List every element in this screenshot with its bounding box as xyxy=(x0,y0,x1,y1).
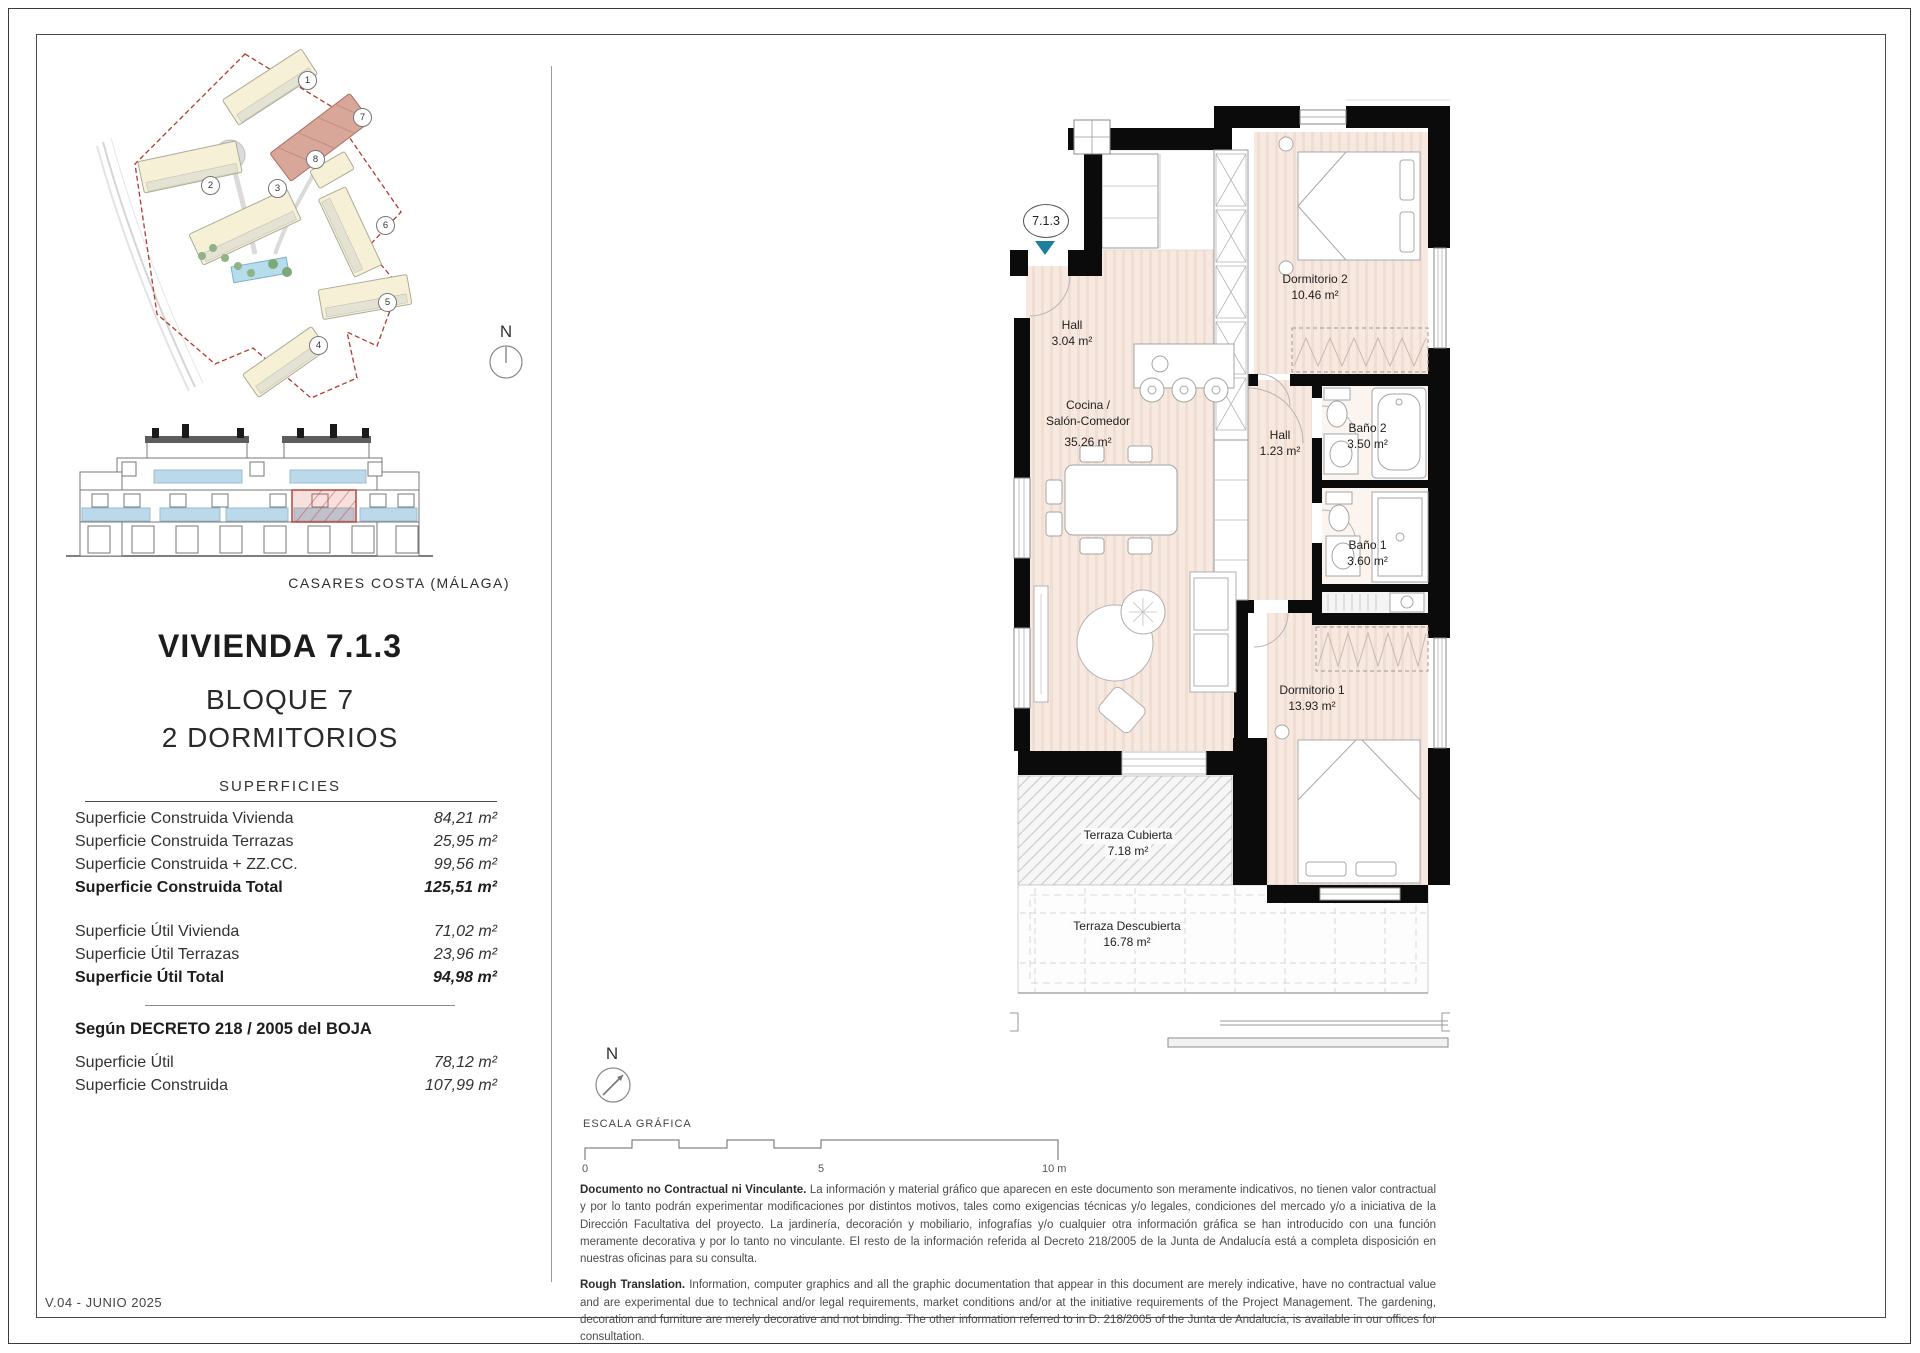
table-row: Superficie Construida Vivienda 84,21 m² xyxy=(75,810,497,833)
site-building-number-7: 7 xyxy=(353,108,372,127)
row-label: Superficie Construida Vivienda xyxy=(75,810,294,828)
row-label: Superficie Construida Terrazas xyxy=(75,833,293,851)
floor-plan-drawing xyxy=(1010,88,1450,1058)
elevation-drawing xyxy=(62,420,437,565)
site-building-number-8: 8 xyxy=(306,150,325,169)
north-label-plan: N xyxy=(592,1044,632,1064)
room-name: Salón-Comedor xyxy=(1018,414,1158,430)
highlighted-unit xyxy=(292,490,356,522)
location-caption: CASARES COSTA (MÁLAGA) xyxy=(255,575,510,591)
row-value: 99,56 m² xyxy=(434,856,497,874)
built-surfaces-table: Superficie Construida Vivienda 84,21 m² … xyxy=(75,810,497,902)
room-area: 3.60 m² xyxy=(1320,554,1415,570)
pool xyxy=(231,257,289,282)
table-row: Superficie Útil Terrazas 23,96 m² xyxy=(75,946,497,969)
site-building-number-5: 5 xyxy=(378,293,397,312)
room-label-dormitorio2: Dormitorio 2 10.46 m² xyxy=(1245,272,1385,303)
table-row: Superficie Construida + ZZ.CC. 99,56 m² xyxy=(75,856,497,879)
disclaimer-es-lead: Documento no Contractual ni Vinculante. xyxy=(580,1184,806,1196)
decree-rule xyxy=(145,1005,455,1006)
unit-title: VIVIENDA 7.1.3 xyxy=(58,628,502,665)
useful-surfaces-table: Superficie Útil Vivienda 71,02 m² Superf… xyxy=(75,923,497,992)
room-name: Dormitorio 2 xyxy=(1245,272,1385,288)
site-building-number-1: 1 xyxy=(298,71,317,90)
room-area: 35.26 m² xyxy=(1018,435,1158,451)
version-stamp: V.04 - JUNIO 2025 xyxy=(45,1295,162,1310)
table-row: Superficie Construida 107,99 m² xyxy=(75,1077,497,1100)
row-label: Superficie Útil Terrazas xyxy=(75,946,239,964)
room-area: 3.50 m² xyxy=(1320,437,1415,453)
room-label-bano1: Baño 1 3.60 m² xyxy=(1320,538,1415,569)
row-label: Superficie Construida xyxy=(75,1077,228,1095)
terrace-open xyxy=(1010,885,1450,1047)
room-name: Terraza Descubierta xyxy=(1070,919,1183,935)
room-name: Hall xyxy=(1022,318,1122,334)
room-label-terraza-cubierta: Terraza Cubierta 7.18 m² xyxy=(1058,828,1198,859)
decree-table: Superficie Útil 78,12 m² Superficie Cons… xyxy=(75,1054,497,1100)
row-label: Superficie Útil xyxy=(75,1054,174,1072)
block-subtitle: BLOQUE 7 xyxy=(58,684,502,716)
site-building-number-2: 2 xyxy=(201,176,220,195)
disclaimer-en: Rough Translation. Information, computer… xyxy=(580,1277,1436,1346)
table-row-total: Superficie Construida Total 125,51 m² xyxy=(75,879,497,902)
row-value: 125,51 m² xyxy=(424,879,497,897)
disclaimer-en-body: Information, computer graphics and all t… xyxy=(580,1279,1436,1343)
chimneys xyxy=(152,424,369,438)
scale-tick-0: 0 xyxy=(582,1163,588,1174)
bedrooms-subtitle: 2 DORMITORIOS xyxy=(58,722,502,754)
unit-tag-balloon: 7.1.3 xyxy=(1023,204,1069,238)
building-5 xyxy=(318,274,412,319)
table-row-total: Superficie Útil Total 94,98 m² xyxy=(75,969,497,992)
row-value: 71,02 m² xyxy=(434,923,497,941)
decree-heading: Según DECRETO 218 / 2005 del BOJA xyxy=(75,1020,497,1039)
building-2 xyxy=(138,141,242,193)
room-name: Terraza Cubierta xyxy=(1081,828,1176,844)
scale-bar: 0 5 10 m xyxy=(580,1134,1080,1174)
plan-sheet: 1 2 3 4 5 6 7 8 N xyxy=(0,0,1920,1353)
surfaces-heading: SUPERFICIES xyxy=(58,778,502,795)
panel-divider xyxy=(551,66,552,1282)
scale-tick-10: 10 m xyxy=(1042,1163,1066,1174)
site-building-number-3: 3 xyxy=(268,179,287,198)
ground-windows xyxy=(88,526,418,553)
room-label-terraza-descubierta: Terraza Descubierta 16.78 m² xyxy=(1047,919,1207,950)
legal-disclaimer: Documento no Contractual ni Vinculante. … xyxy=(580,1182,1436,1353)
row-label: Superficie Útil Total xyxy=(75,969,224,987)
row-value: 23,96 m² xyxy=(434,946,497,964)
table-row: Superficie Útil 78,12 m² xyxy=(75,1054,497,1077)
room-label-dormitorio1: Dormitorio 1 13.93 m² xyxy=(1242,683,1382,714)
compass-top-icon xyxy=(488,344,524,380)
row-value: 94,98 m² xyxy=(433,969,497,987)
disclaimer-en-lead: Rough Translation. xyxy=(580,1279,685,1291)
room-area: 13.93 m² xyxy=(1242,699,1382,715)
scale-tick-5: 5 xyxy=(818,1163,824,1174)
room-label-hall2: Hall 1.23 m² xyxy=(1242,428,1318,459)
room-area: 10.46 m² xyxy=(1245,288,1385,304)
building-3 xyxy=(189,189,301,265)
site-building-number-6: 6 xyxy=(376,216,395,235)
room-name: Cocina / xyxy=(1018,398,1158,414)
room-area: 7.18 m² xyxy=(1105,844,1152,860)
balcony-glass-row xyxy=(82,508,417,521)
room-label-bano2: Baño 2 3.50 m² xyxy=(1320,421,1415,452)
room-area: 16.78 m² xyxy=(1100,935,1153,951)
room-name: Baño 2 xyxy=(1320,421,1415,437)
unit-tag-pointer-icon xyxy=(1035,241,1055,255)
scale-bar-label: ESCALA GRÁFICA xyxy=(583,1118,692,1130)
room-area: 1.23 m² xyxy=(1242,444,1318,460)
room-label-hall: Hall 3.04 m² xyxy=(1022,318,1122,349)
table-row: Superficie Útil Vivienda 71,02 m² xyxy=(75,923,497,946)
row-value: 107,99 m² xyxy=(425,1077,497,1095)
row-label: Superficie Construida + ZZ.CC. xyxy=(75,856,298,874)
disclaimer-es: Documento no Contractual ni Vinculante. … xyxy=(580,1182,1436,1268)
north-label-top: N xyxy=(486,322,526,342)
row-value: 84,21 m² xyxy=(434,810,497,828)
row-value: 78,12 m² xyxy=(434,1054,497,1072)
room-label-cocina-salon: Cocina / Salón-Comedor 35.26 m² xyxy=(1018,398,1158,451)
room-name: Baño 1 xyxy=(1320,538,1415,554)
disclaimer-es-body: La información y material gráfico que ap… xyxy=(580,1184,1436,1265)
surfaces-rule xyxy=(85,801,497,802)
site-plan xyxy=(95,42,425,417)
row-label: Superficie Útil Vivienda xyxy=(75,923,239,941)
building-6 xyxy=(318,187,382,278)
room-area: 3.04 m² xyxy=(1022,334,1122,350)
compass-plan-icon xyxy=(594,1066,634,1106)
row-label: Superficie Construida Total xyxy=(75,879,283,897)
table-row: Superficie Construida Terrazas 25,95 m² xyxy=(75,833,497,856)
site-building-number-4: 4 xyxy=(309,336,328,355)
kitchen-island xyxy=(1134,344,1234,402)
room-name: Hall xyxy=(1242,428,1318,444)
room-name: Dormitorio 1 xyxy=(1242,683,1382,699)
row-value: 25,95 m² xyxy=(434,833,497,851)
